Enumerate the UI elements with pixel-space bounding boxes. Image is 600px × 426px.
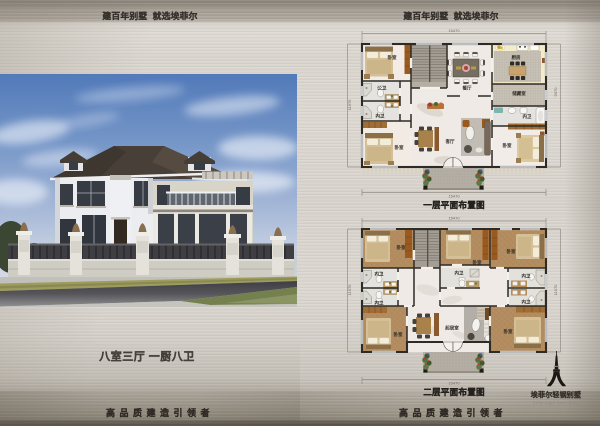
svg-text:内卫: 内卫	[523, 113, 532, 120]
svg-text:卧室: 卧室	[388, 54, 397, 61]
svg-text:卧室: 卧室	[394, 331, 403, 338]
svg-text:卧室: 卧室	[503, 142, 512, 149]
svg-text:9970: 9970	[553, 87, 558, 97]
svg-text:11970: 11970	[347, 284, 352, 296]
svg-text:公卫: 公卫	[378, 85, 387, 92]
svg-text:内卫: 内卫	[376, 113, 385, 120]
svg-text:厨房: 厨房	[512, 54, 521, 61]
svg-text:卧室: 卧室	[507, 248, 516, 255]
svg-text:11970: 11970	[347, 99, 352, 111]
svg-text:15470: 15470	[448, 216, 460, 221]
svg-text:11970: 11970	[553, 284, 558, 296]
svg-text:内卫: 内卫	[522, 273, 531, 280]
svg-text:15470: 15470	[448, 28, 460, 33]
svg-text:卧室: 卧室	[504, 328, 513, 335]
svg-text:内卫: 内卫	[375, 300, 384, 307]
svg-text:内卫: 内卫	[375, 271, 384, 278]
svg-text:餐厅: 餐厅	[462, 85, 472, 92]
svg-text:起居室: 起居室	[444, 325, 459, 332]
svg-text:内卫: 内卫	[522, 299, 531, 306]
svg-text:卧室: 卧室	[397, 244, 406, 251]
svg-text:卧室: 卧室	[473, 259, 482, 266]
svg-text:卧室: 卧室	[395, 144, 404, 151]
svg-text:客厅: 客厅	[446, 138, 455, 145]
svg-text:内卫: 内卫	[455, 270, 464, 277]
svg-text:储藏室: 储藏室	[512, 90, 526, 97]
